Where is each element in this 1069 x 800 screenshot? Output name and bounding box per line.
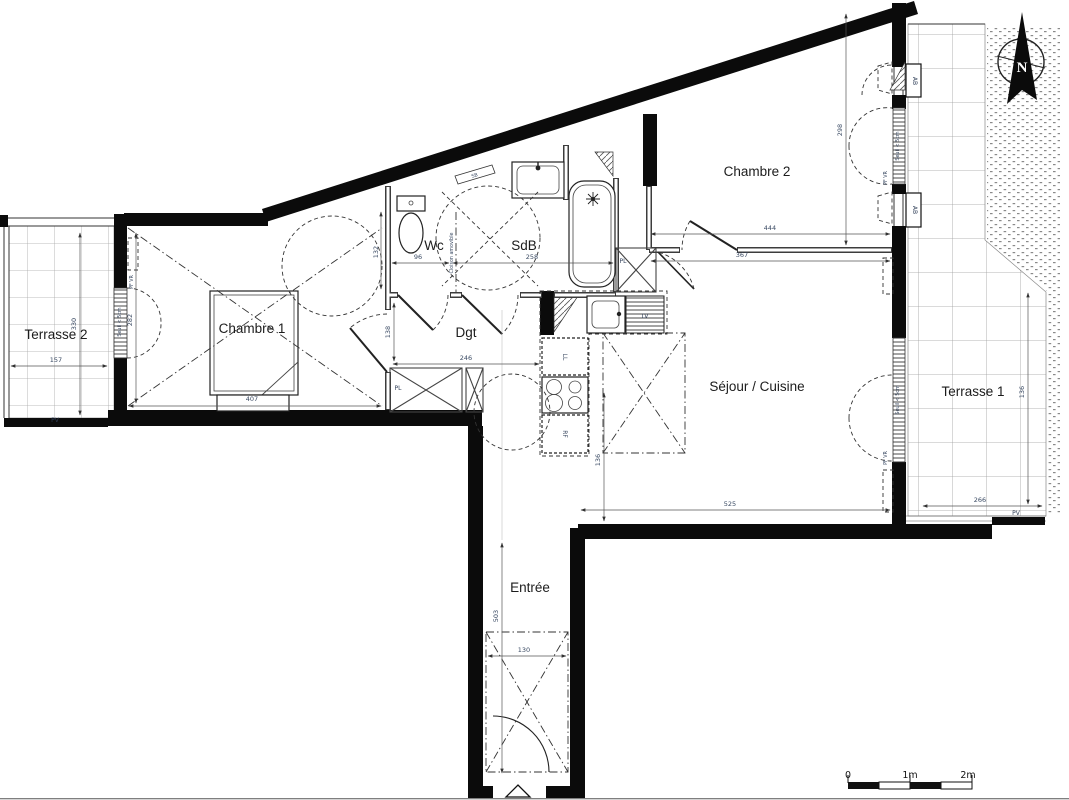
tag-cloison-amovible: Cloison amovible [449,232,455,273]
room-label-terrasse1: Terrasse 1 [941,384,1004,399]
tag-lv-dishwasher: LV [642,313,650,320]
dim-dgt-height: 138 [384,326,392,338]
room-label-terrasse2: Terrasse 2 [24,327,87,342]
room-label-chambre1: Chambre 1 [219,321,286,336]
room-label-entree: Entrée [510,580,550,595]
dim-terrasse1-width: 266 [974,496,986,504]
scale-2m: 2m [960,770,975,781]
room-label-wc: Wc [424,238,444,253]
scale-zero: 0 [845,770,851,781]
tag-seuil-left: Seuil < 5cm [117,307,123,336]
dim-chambre2-width: 444 [764,224,776,232]
dim-sdb-width: 258 [526,253,538,261]
dim-sejour-width-top: 367 [736,251,748,259]
tag-ab-2: AB [911,206,918,214]
tag-ab-1: AB [911,77,918,85]
entrance-marker [506,785,530,797]
tag-pl-sejour: PL [620,258,628,265]
dim-entree-width: 130 [518,646,530,654]
room-label-dgt: Dgt [455,325,476,340]
dim-sejour-height: 136 [594,454,602,466]
dim-entree-height: 503 [492,610,500,622]
floorplan-svg: 157 330 407 282 96 258 132 246 138 444 2… [0,0,1069,800]
tag-pfvr-chambre2: PF VR [883,170,889,184]
tag-ll-washer: LL [561,354,568,361]
dim-sejour-width-bottom: 525 [724,500,736,508]
tag-pfvr-sejour: PF VR [883,450,889,464]
dim-terrasse2-width: 157 [50,356,62,364]
tag-pv-terrasse2: PV [51,417,60,424]
room-label-chambre2: Chambre 2 [724,164,791,179]
dim-terrasse1-height: 136 [1018,386,1026,398]
dim-wc-width: 96 [414,253,422,261]
bed [210,291,298,411]
dim-dgt-width: 246 [460,354,472,362]
dim-wc-height: 132 [372,246,380,258]
floorplan-page: 157 330 407 282 96 258 132 246 138 444 2… [0,0,1069,800]
dim-chambre2-height: 298 [836,124,844,136]
dim-chambre1-height: 282 [126,314,134,326]
terrace-2-grid [0,218,114,418]
room-label-sejour: Séjour / Cuisine [709,379,804,394]
north-letter: N [1017,60,1028,76]
tag-seuil-sejour: Seuil < 5cm [895,385,901,414]
scale-1m: 1m [902,770,917,781]
room-label-sdb: SdB [511,238,537,253]
tag-seuil-chambre2: Seuil < 5cm [895,131,901,160]
tag-pfvr-left: PF VR [129,274,135,288]
tag-rf-fridge: RF [561,430,568,438]
tag-pv-terrasse1: PV [1012,510,1021,517]
exterior-walls [0,1,1045,798]
scale-bar: 0 1m 2m [845,770,976,789]
toilet [397,196,425,253]
dim-chambre1-width: 407 [246,395,258,403]
tag-pl-dgt: PL [395,385,403,392]
bathtub [569,181,615,287]
